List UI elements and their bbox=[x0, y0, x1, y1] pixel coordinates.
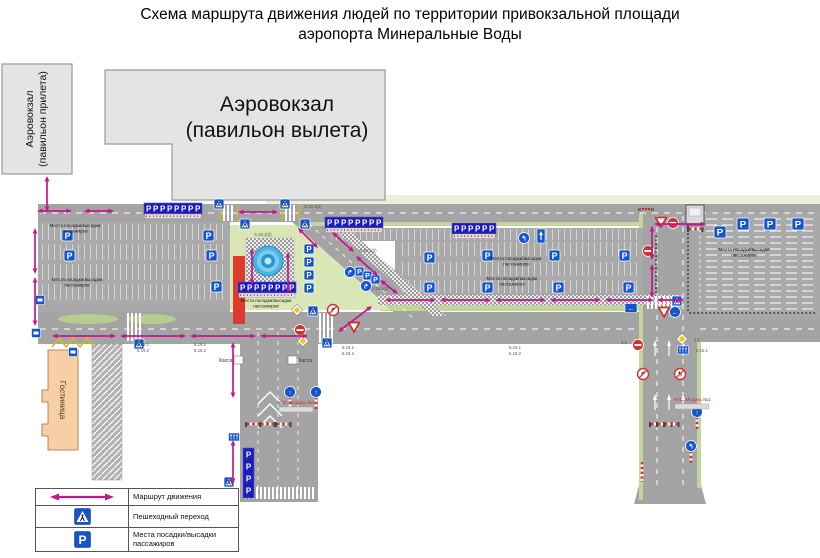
svg-text:P: P bbox=[240, 284, 246, 293]
svg-text:P: P bbox=[622, 251, 628, 261]
svg-text:P: P bbox=[247, 284, 253, 293]
fountain bbox=[253, 246, 283, 276]
parking-sign: P bbox=[764, 218, 776, 231]
sign-code-label: 5.19.1 bbox=[194, 342, 207, 347]
sign-code-label: 5.19.2 bbox=[342, 351, 355, 356]
legend: Маршрут движения Пешеходный переход P М bbox=[35, 488, 239, 552]
svg-text:Касса: Касса bbox=[219, 358, 233, 364]
no-entry-sign bbox=[295, 325, 306, 336]
parking-sign-row: PPPP bbox=[243, 448, 254, 498]
svg-text:P: P bbox=[195, 205, 201, 214]
svg-text:P: P bbox=[427, 253, 433, 263]
legend-row-crosswalk: Пешеходный переход bbox=[36, 505, 238, 527]
svg-text:↑: ↑ bbox=[695, 409, 698, 416]
ticket-booth: Касса bbox=[219, 356, 243, 364]
parking-sign: P bbox=[553, 282, 564, 293]
svg-text:P: P bbox=[268, 284, 274, 293]
parking-sign-row: PPPPPPPP bbox=[325, 217, 383, 233]
parking-sign: P bbox=[304, 270, 314, 280]
svg-text:5.19.2: 5.19.2 bbox=[137, 348, 150, 353]
svg-text:Места посадки/высадки: Места посадки/высадки bbox=[241, 298, 292, 303]
svg-text:P: P bbox=[214, 282, 220, 292]
title-line-1: Схема маршрута движения людей по террито… bbox=[0, 5, 820, 25]
svg-text:↰: ↰ bbox=[688, 442, 693, 450]
svg-text:P: P bbox=[365, 271, 370, 280]
arrival-building-label: Аэровокзал (павильон прилета) bbox=[2, 64, 72, 174]
svg-text:P: P bbox=[246, 475, 252, 484]
no-turn-sign: ↱ bbox=[328, 305, 339, 316]
svg-text:P: P bbox=[740, 220, 747, 231]
no-entry-sign bbox=[633, 340, 644, 351]
parking-sign: P bbox=[203, 230, 214, 241]
sign-code-label: 5.19.1(2) bbox=[304, 204, 322, 209]
svg-text:5.19.1: 5.19.1 bbox=[137, 342, 150, 347]
svg-text:P: P bbox=[160, 205, 166, 214]
svg-text:P: P bbox=[246, 451, 252, 460]
svg-text:←: ← bbox=[628, 306, 635, 313]
lane-directions-sign bbox=[229, 433, 240, 441]
parking-sign: P bbox=[792, 218, 804, 231]
svg-text:P: P bbox=[209, 251, 215, 261]
sign-code-label: 2.1 bbox=[694, 337, 701, 342]
svg-text:АПС. Модуль №2: АПС. Модуль №2 bbox=[277, 400, 315, 405]
svg-text:пассажиров: пассажиров bbox=[503, 262, 529, 267]
route-arrow bbox=[33, 228, 38, 274]
parking-sign: P bbox=[623, 282, 634, 293]
parking-sign: P bbox=[206, 250, 217, 261]
parking-sign: P bbox=[424, 252, 435, 263]
route-arrow-symbol bbox=[36, 489, 129, 505]
svg-text:P: P bbox=[153, 205, 159, 214]
svg-text:P: P bbox=[427, 283, 433, 293]
svg-text:P: P bbox=[717, 228, 724, 239]
svg-text:5.19.2: 5.19.2 bbox=[509, 351, 522, 356]
sign-code-label: 3.1 bbox=[621, 340, 628, 345]
svg-text:P: P bbox=[461, 225, 467, 234]
svg-text:P: P bbox=[78, 533, 86, 547]
svg-text:P: P bbox=[626, 283, 632, 293]
route-arrow bbox=[231, 342, 236, 398]
svg-text:P: P bbox=[348, 219, 354, 228]
departure-building-label: Аэровокзал (павильон вылета) bbox=[142, 92, 412, 145]
svg-text:P: P bbox=[246, 463, 252, 472]
page-title: Схема маршрута движения людей по террито… bbox=[0, 5, 820, 45]
svg-text:P: P bbox=[306, 245, 312, 254]
svg-text:Места посадки/высадки: Места посадки/высадки bbox=[52, 277, 103, 282]
svg-text:P: P bbox=[334, 219, 340, 228]
svg-text:P: P bbox=[146, 205, 152, 214]
no-turn-sign: ↰ bbox=[675, 369, 686, 380]
svg-text:5.19.1: 5.19.1 bbox=[509, 345, 522, 350]
legend-boarding-label: Места посадки/высадки пассажиров bbox=[129, 528, 238, 551]
svg-text:P: P bbox=[373, 275, 378, 284]
no-entry-sign bbox=[668, 218, 679, 229]
hotel-label: Гостиница bbox=[48, 350, 78, 450]
svg-text:P: P bbox=[181, 205, 187, 214]
svg-text:P: P bbox=[376, 219, 382, 228]
crosswalk-sign-icon bbox=[36, 506, 129, 527]
one-way-sign bbox=[537, 229, 545, 243]
sign-code-label: 5.19.2 bbox=[137, 348, 150, 353]
parking-sign: P bbox=[714, 226, 726, 239]
site-plan: PPPPPPPPPPPPPPPPPPPPPPPPPPPPPPPPPPPPPPPP… bbox=[0, 0, 820, 558]
legend-route-label: Маршрут движения bbox=[129, 489, 238, 505]
route-arrow bbox=[45, 176, 50, 212]
svg-text:5.15.1: 5.15.1 bbox=[696, 348, 709, 353]
svg-text:P: P bbox=[454, 225, 460, 234]
svg-text:Места посадки/высадки: Места посадки/высадки bbox=[487, 276, 538, 281]
mandatory-direction-sign: ↰ bbox=[519, 233, 530, 244]
svg-text:5.19.1: 5.19.1 bbox=[342, 345, 355, 350]
parking-sign: P bbox=[304, 257, 314, 267]
parking-sign: P bbox=[64, 250, 75, 261]
svg-text:5.19.1(2): 5.19.1(2) bbox=[371, 286, 389, 291]
parking-sign-icon: P bbox=[36, 528, 129, 551]
svg-text:»: » bbox=[651, 206, 655, 213]
pedestrian-crossing-sign bbox=[300, 219, 310, 229]
svg-text:P: P bbox=[369, 219, 375, 228]
svg-text:P: P bbox=[167, 205, 173, 214]
sign-code-label: 5.19.1 bbox=[342, 345, 355, 350]
svg-text:P: P bbox=[552, 251, 558, 261]
svg-text:P: P bbox=[261, 284, 267, 293]
parking-sign: P bbox=[304, 283, 314, 293]
svg-text:пассажиров: пассажиров bbox=[499, 282, 525, 287]
parking-sign: P bbox=[304, 244, 314, 254]
legend-crosswalk-label: Пешеходный переход bbox=[129, 506, 238, 527]
sign-code-label: 5.15.1 bbox=[696, 348, 709, 353]
svg-text:P: P bbox=[482, 225, 488, 234]
svg-text:←: ← bbox=[672, 309, 679, 316]
title-line-2: аэропорта Минеральные Воды bbox=[0, 25, 820, 45]
svg-text:пассажиров: пассажиров bbox=[64, 283, 90, 288]
svg-text:5.19.2: 5.19.2 bbox=[194, 348, 207, 353]
pedestrian-crossing-sign bbox=[280, 199, 290, 209]
direction-arrow-sign: ← bbox=[625, 304, 637, 313]
parking-sign-row: PPPPPPPP bbox=[144, 203, 202, 219]
svg-text:P: P bbox=[489, 225, 495, 234]
sign-code-label: 5.19.1 bbox=[509, 345, 522, 350]
svg-text:P: P bbox=[206, 231, 212, 241]
svg-text:5.19.1(2): 5.19.1(2) bbox=[254, 232, 272, 237]
svg-text:P: P bbox=[357, 267, 362, 276]
svg-text:P: P bbox=[275, 284, 281, 293]
svg-text:2.1: 2.1 bbox=[694, 337, 701, 342]
mandatory-direction-sign: ↱ bbox=[361, 281, 372, 292]
svg-text:5.19.1: 5.19.1 bbox=[194, 342, 207, 347]
parking-sign: P bbox=[211, 281, 222, 292]
bus-stop-sign bbox=[36, 296, 45, 305]
pedestrian-crossing-sign bbox=[214, 199, 224, 209]
pedestrian-crossing-sign bbox=[322, 338, 332, 348]
svg-text:P: P bbox=[306, 284, 312, 293]
parking-sign-row: PPPPPP bbox=[452, 223, 496, 239]
sign-code-label: 5.19.1(2) bbox=[254, 232, 272, 237]
svg-text:5.19.1(2): 5.19.1(2) bbox=[359, 248, 377, 253]
svg-text:«: « bbox=[638, 206, 642, 213]
svg-text:P: P bbox=[362, 219, 368, 228]
svg-text:P: P bbox=[67, 251, 73, 261]
bus-stop-sign bbox=[32, 329, 41, 338]
svg-text:P: P bbox=[341, 219, 347, 228]
svg-text:P: P bbox=[327, 219, 333, 228]
svg-text:↰: ↰ bbox=[521, 234, 526, 242]
mandatory-direction-sign: ← bbox=[670, 307, 681, 318]
svg-text:пассажиров: пассажиров bbox=[253, 304, 279, 309]
svg-text:P: P bbox=[556, 283, 562, 293]
svg-text:P: P bbox=[188, 205, 194, 214]
svg-text:P: P bbox=[254, 284, 260, 293]
lane-directions-sign bbox=[678, 346, 689, 354]
closed-road-hatch bbox=[92, 344, 122, 480]
svg-text:P: P bbox=[468, 225, 474, 234]
svg-text:↱: ↱ bbox=[347, 268, 352, 276]
svg-text:P: P bbox=[306, 271, 312, 280]
svg-text:P: P bbox=[306, 258, 312, 267]
svg-text:Места посадки/высадки: Места посадки/высадки bbox=[719, 247, 770, 252]
sign-code-label: 5.19.1(2) bbox=[371, 286, 389, 291]
parking-sign: P bbox=[737, 218, 749, 231]
no-turn-sign: ↱ bbox=[638, 369, 649, 380]
svg-text:Касса: Касса bbox=[299, 358, 313, 364]
svg-text:5.19.1(2): 5.19.1(2) bbox=[304, 204, 322, 209]
svg-text:P: P bbox=[767, 220, 774, 231]
svg-text:P: P bbox=[795, 220, 802, 231]
sign-code-label: 5.19.1(2) bbox=[359, 248, 377, 253]
svg-text:АПС. Модуль №1: АПС. Модуль №1 bbox=[673, 397, 711, 402]
svg-text:↱: ↱ bbox=[363, 282, 368, 290]
svg-text:3.1: 3.1 bbox=[621, 340, 628, 345]
parking-sign: P bbox=[549, 250, 560, 261]
pedestrian-crossing-sign bbox=[240, 219, 250, 229]
svg-text:↑: ↑ bbox=[314, 389, 317, 396]
svg-text:Места посадки/высадки: Места посадки/высадки bbox=[491, 256, 542, 261]
svg-text:P: P bbox=[174, 205, 180, 214]
parking-sign: P bbox=[482, 282, 493, 293]
svg-text:Места посадки/высадки: Места посадки/высадки bbox=[50, 223, 101, 228]
svg-text:P: P bbox=[246, 487, 252, 496]
svg-text:пассажиров: пассажиров bbox=[62, 229, 88, 234]
svg-text:P: P bbox=[475, 225, 481, 234]
arrival-building-label-wrap: Аэровокзал (павильон прилета) bbox=[2, 64, 72, 174]
sign-code-label: 5.19.2 bbox=[509, 351, 522, 356]
svg-text:↑: ↑ bbox=[288, 389, 291, 396]
parking-sign: P bbox=[424, 282, 435, 293]
svg-text:P: P bbox=[355, 219, 361, 228]
svg-text:P: P bbox=[485, 283, 491, 293]
svg-text:пассажиров: пассажиров bbox=[731, 253, 757, 258]
scheme-page: PPPPPPPPPPPPPPPPPPPPPPPPPPPPPPPPPPPPPPPP… bbox=[0, 0, 820, 558]
pedestrian-crossing-sign bbox=[308, 306, 318, 316]
sign-code-label: 5.19.1 bbox=[137, 342, 150, 347]
legend-row-route: Маршрут движения bbox=[36, 489, 238, 505]
mandatory-direction-sign: ↱ bbox=[345, 267, 356, 278]
ticket-booth: Касса bbox=[288, 356, 312, 364]
parking-sign: P bbox=[371, 275, 380, 284]
parking-sign: P bbox=[619, 250, 630, 261]
sign-code-label: 5.19.2 bbox=[194, 348, 207, 353]
svg-text:5.19.2: 5.19.2 bbox=[342, 351, 355, 356]
legend-row-boarding: P Места посадки/высадки пассажиров bbox=[36, 527, 238, 551]
hotel-label-wrap: Гостиница bbox=[48, 350, 78, 450]
